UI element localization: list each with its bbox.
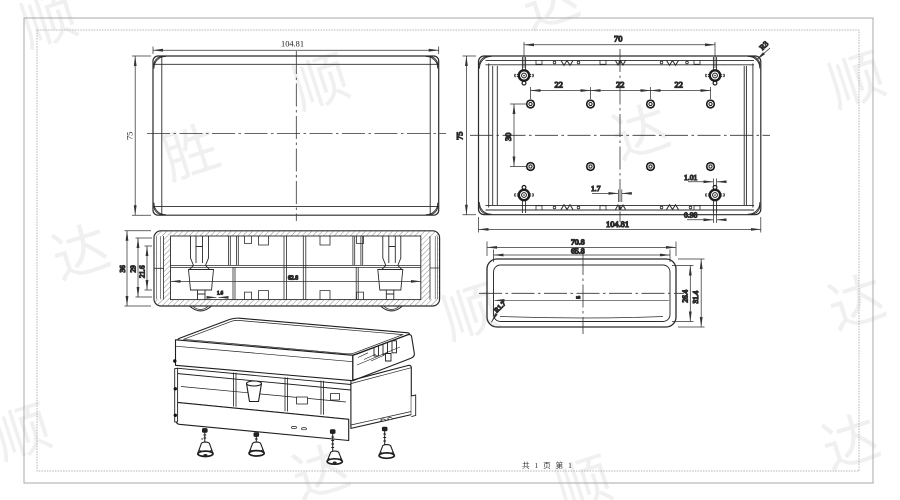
svg-text:22: 22 xyxy=(675,81,683,90)
svg-text:达: 达 xyxy=(820,264,893,341)
svg-text:1.01: 1.01 xyxy=(684,173,697,182)
svg-text:22: 22 xyxy=(555,81,563,90)
svg-text:104.81: 104.81 xyxy=(606,220,629,229)
svg-text:29: 29 xyxy=(129,265,137,273)
svg-text:62.8: 62.8 xyxy=(288,276,298,282)
svg-text:达: 达 xyxy=(44,214,117,291)
svg-text:共 1 页 第 1: 共 1 页 第 1 xyxy=(522,460,573,470)
svg-text:104.81: 104.81 xyxy=(281,40,304,49)
svg-text:36: 36 xyxy=(119,265,127,273)
svg-text:1.7: 1.7 xyxy=(591,184,601,193)
svg-text:顺: 顺 xyxy=(820,42,893,119)
svg-text:21.6: 21.6 xyxy=(138,265,146,278)
svg-text:30: 30 xyxy=(504,133,513,141)
svg-text:达: 达 xyxy=(284,434,357,500)
svg-text:顺: 顺 xyxy=(547,446,620,500)
svg-text:75: 75 xyxy=(126,132,135,140)
svg-text:达: 达 xyxy=(814,404,887,481)
svg-text:胜: 胜 xyxy=(154,114,227,191)
svg-text:26.4: 26.4 xyxy=(681,290,689,303)
svg-text:70: 70 xyxy=(614,35,622,44)
svg-text:达: 达 xyxy=(604,94,677,171)
svg-text:22: 22 xyxy=(616,81,624,90)
svg-text:1.6: 1.6 xyxy=(217,292,224,297)
svg-text:5: 5 xyxy=(576,296,582,299)
svg-text:顺: 顺 xyxy=(0,394,59,471)
svg-text:R3: R3 xyxy=(758,39,771,52)
svg-text:31.4: 31.4 xyxy=(692,291,700,304)
svg-text:65.8: 65.8 xyxy=(571,246,585,255)
svg-text:0.98: 0.98 xyxy=(684,211,697,220)
svg-text:75: 75 xyxy=(456,132,465,140)
svg-text:达: 达 xyxy=(514,0,587,41)
